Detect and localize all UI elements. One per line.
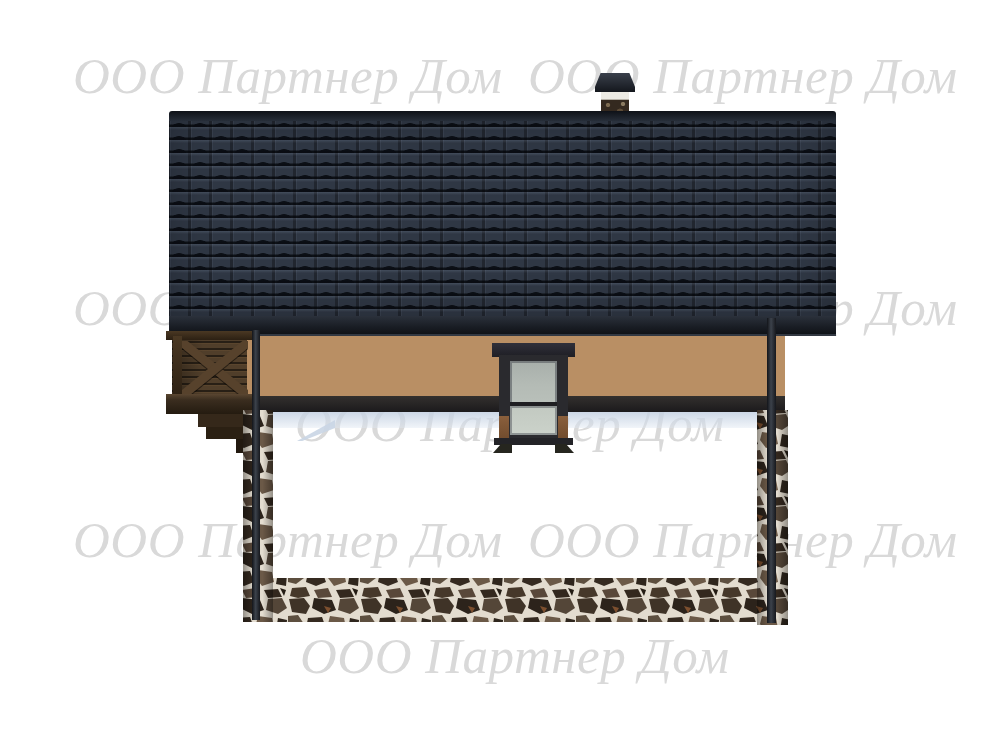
stone-foundation-strip <box>243 578 788 622</box>
window-glass-upper <box>510 361 557 404</box>
downspout-left <box>252 330 260 620</box>
downspout-right <box>767 318 776 623</box>
window-sill <box>494 438 573 445</box>
window-glass-lower <box>510 406 557 435</box>
house-elevation-render: ООО Партнер Дом ООО Партнер Дом ООО Парт… <box>0 0 1000 750</box>
